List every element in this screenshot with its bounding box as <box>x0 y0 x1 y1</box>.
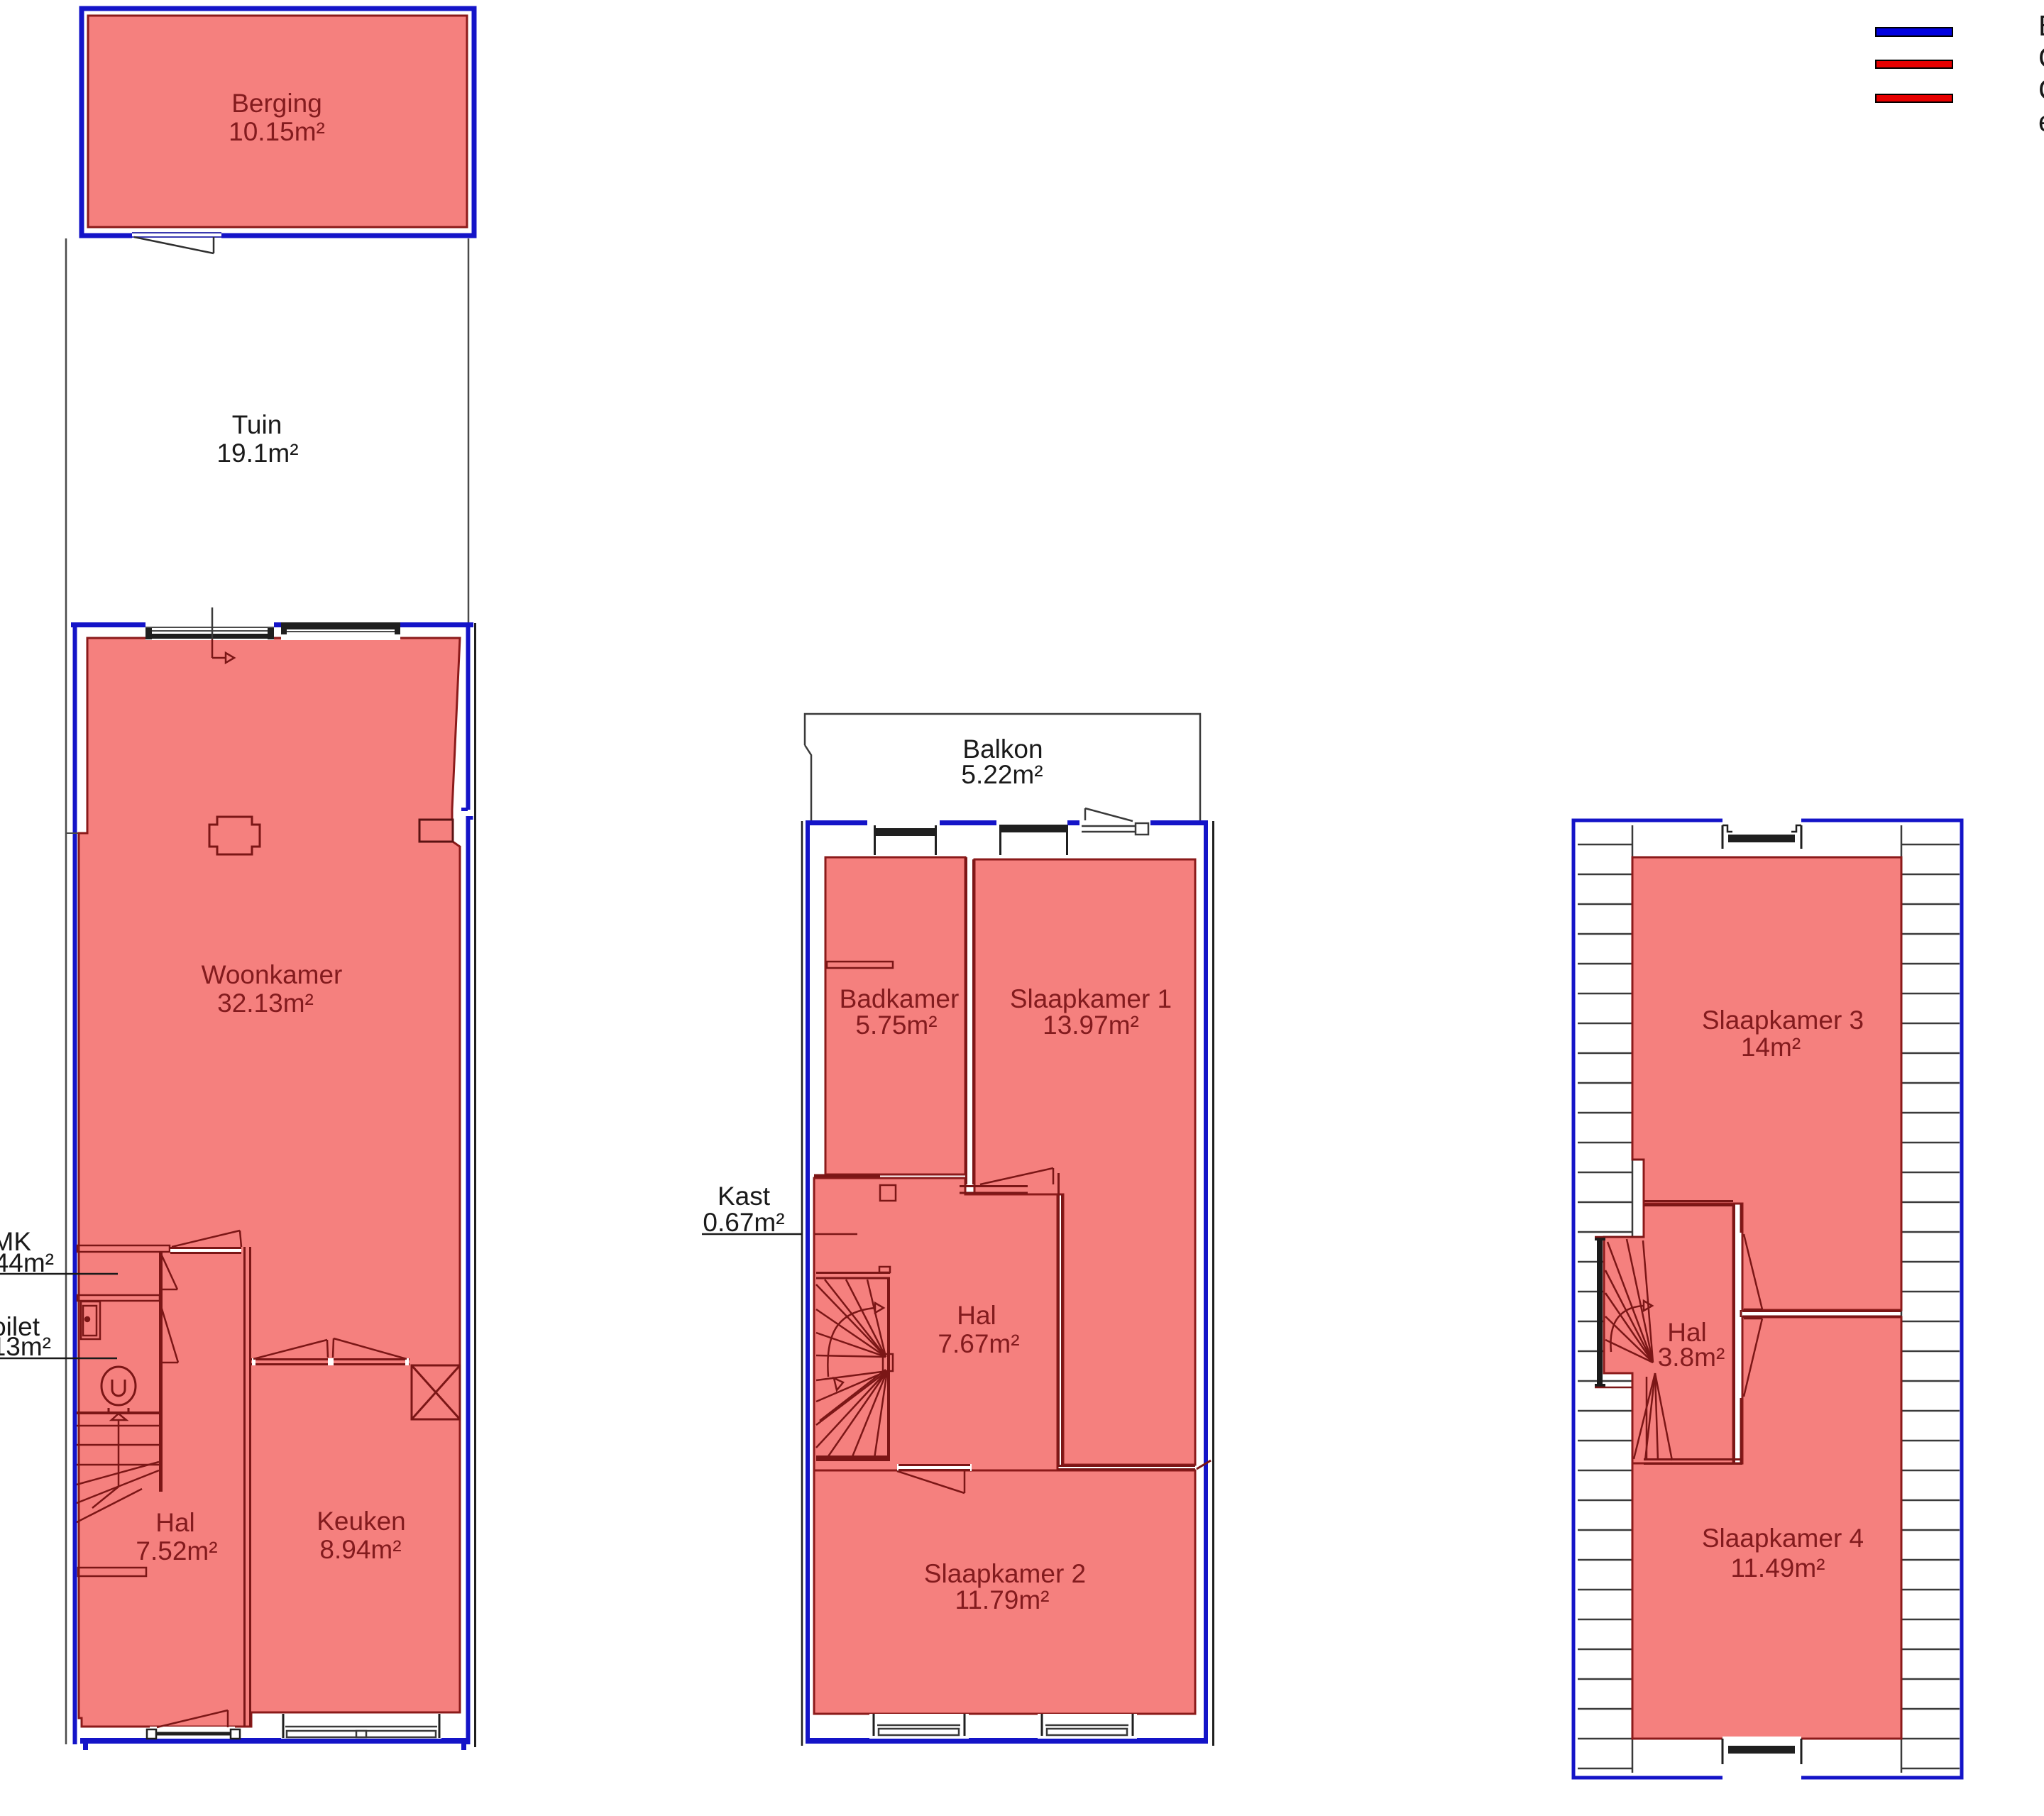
svg-text:Tuin: Tuin <box>232 410 282 439</box>
svg-text:Slaapkamer 4: Slaapkamer 4 <box>1702 1524 1864 1553</box>
svg-text:11.49m²: 11.49m² <box>1731 1553 1825 1583</box>
svg-text:C: C <box>2038 73 2044 106</box>
svg-text:32.13m²: 32.13m² <box>217 989 314 1018</box>
svg-text:Slaapkamer 2: Slaapkamer 2 <box>924 1559 1086 1588</box>
svg-text:5.75m²: 5.75m² <box>855 1011 937 1040</box>
svg-text:Berging: Berging <box>231 89 322 118</box>
svg-text:Hal: Hal <box>957 1301 996 1330</box>
svg-text:Woonkamer: Woonkamer <box>202 960 343 989</box>
svg-text:0.13m²: 0.13m² <box>0 1332 51 1361</box>
svg-text:Keuken: Keuken <box>317 1507 406 1536</box>
svg-text:11.79m²: 11.79m² <box>955 1585 1050 1614</box>
svg-text:19.1m²: 19.1m² <box>216 439 298 468</box>
svg-text:7.67m²: 7.67m² <box>938 1329 1019 1358</box>
svg-text:0.44m²: 0.44m² <box>0 1248 54 1277</box>
svg-text:7.52m²: 7.52m² <box>136 1536 217 1565</box>
svg-text:C: C <box>2038 41 2044 74</box>
svg-text:Balkon: Balkon <box>962 734 1043 764</box>
svg-text:Badkamer: Badkamer <box>840 984 960 1013</box>
svg-text:B: B <box>2038 9 2044 42</box>
svg-text:8.94m²: 8.94m² <box>319 1535 401 1564</box>
svg-text:10.15m²: 10.15m² <box>229 117 325 146</box>
svg-text:3.8m²: 3.8m² <box>1658 1343 1725 1372</box>
svg-text:Slaapkamer 3: Slaapkamer 3 <box>1702 1006 1864 1035</box>
svg-text:0.67m²: 0.67m² <box>703 1208 784 1237</box>
svg-text:5.22m²: 5.22m² <box>961 760 1043 789</box>
svg-text:Slaapkamer 1: Slaapkamer 1 <box>1010 984 1172 1013</box>
svg-text:Hal: Hal <box>155 1508 195 1537</box>
svg-text:e: e <box>2038 105 2044 138</box>
svg-text:Kast: Kast <box>718 1182 771 1211</box>
svg-text:14m²: 14m² <box>1741 1033 1801 1062</box>
svg-text:13.97m²: 13.97m² <box>1043 1011 1139 1040</box>
